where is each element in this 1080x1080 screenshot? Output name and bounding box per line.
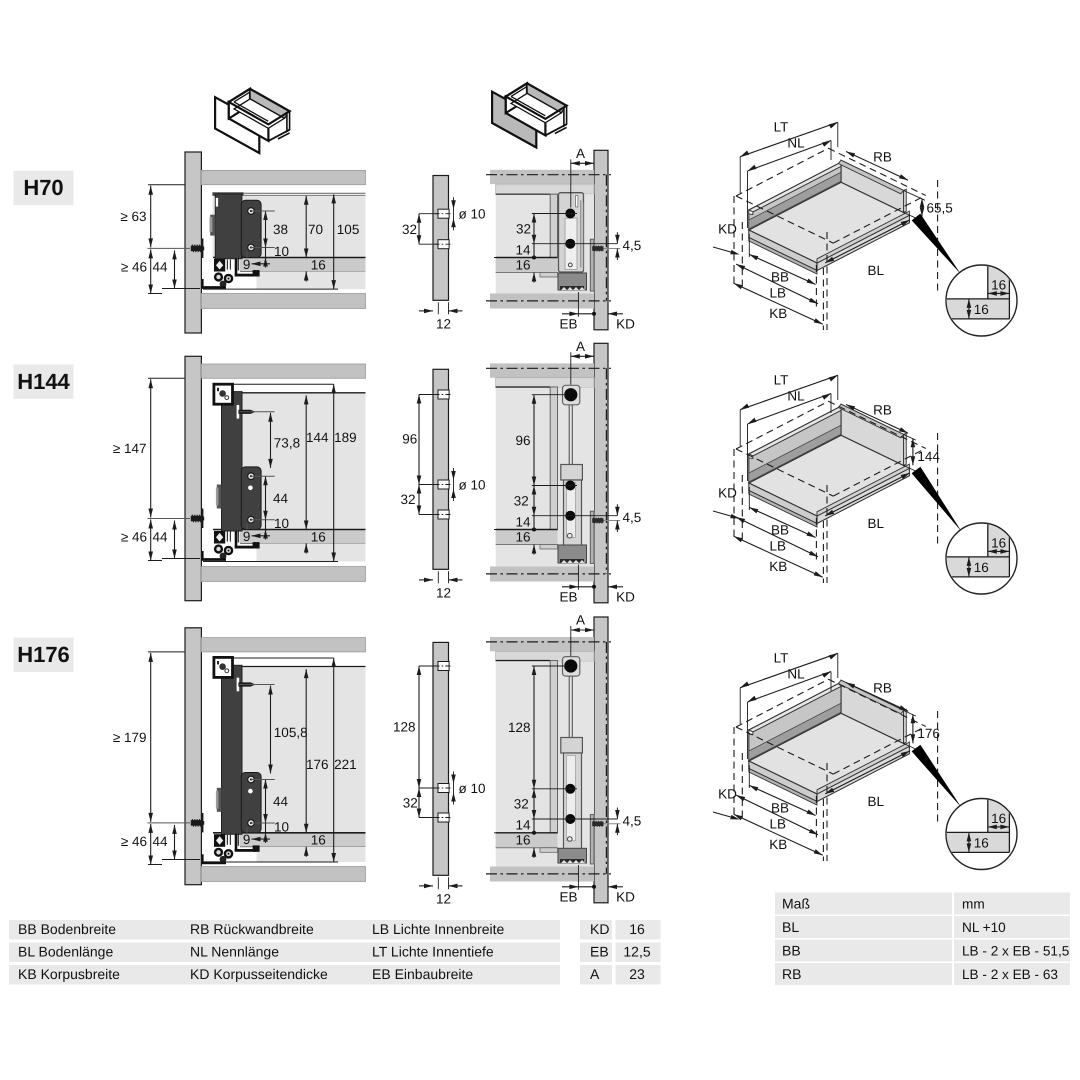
svg-text:LT: LT <box>774 373 789 388</box>
svg-text:10: 10 <box>274 516 289 531</box>
svg-text:RB: RB <box>873 150 892 165</box>
svg-text:ø 10: ø 10 <box>459 781 486 796</box>
svg-text:RB: RB <box>873 681 892 696</box>
svg-text:44: 44 <box>152 834 168 849</box>
svg-text:KD: KD <box>616 316 635 331</box>
svg-text:H144: H144 <box>17 369 70 394</box>
svg-text:LB - 2 x EB - 51,5: LB - 2 x EB - 51,5 <box>962 943 1069 958</box>
svg-text:A: A <box>576 146 585 161</box>
svg-text:≥ 46: ≥ 46 <box>121 260 147 275</box>
svg-text:16: 16 <box>974 836 989 851</box>
svg-text:221: 221 <box>334 757 357 772</box>
svg-text:≥ 46: ≥ 46 <box>121 834 147 849</box>
svg-text:12: 12 <box>436 585 451 600</box>
svg-text:LT: LT <box>774 120 789 135</box>
svg-text:16: 16 <box>311 833 326 848</box>
svg-text:EB: EB <box>559 589 577 604</box>
svg-text:10: 10 <box>274 244 289 259</box>
svg-text:70: 70 <box>308 222 323 237</box>
svg-text:4,5: 4,5 <box>623 238 642 253</box>
svg-text:105: 105 <box>337 222 360 237</box>
svg-text:14: 14 <box>515 242 531 257</box>
svg-text:A: A <box>576 339 585 354</box>
svg-text:128: 128 <box>508 720 531 735</box>
svg-text:NL: NL <box>787 667 805 682</box>
svg-text:16: 16 <box>991 277 1006 292</box>
svg-text:NL: NL <box>787 136 805 151</box>
svg-text:38: 38 <box>273 222 288 237</box>
svg-text:RB: RB <box>782 966 801 982</box>
svg-text:44: 44 <box>273 794 289 809</box>
svg-text:9: 9 <box>243 257 251 272</box>
svg-text:EB: EB <box>559 889 577 904</box>
svg-text:≥ 179: ≥ 179 <box>113 730 147 745</box>
svg-text:32: 32 <box>401 492 416 507</box>
svg-text:Maß: Maß <box>782 896 810 912</box>
svg-text:12: 12 <box>436 316 451 331</box>
svg-text:KD: KD <box>616 889 635 904</box>
svg-text:mm: mm <box>962 896 985 911</box>
svg-text:144: 144 <box>917 449 940 464</box>
svg-text:BL: BL <box>782 919 799 935</box>
svg-text:LB - 2 x EB - 63: LB - 2 x EB - 63 <box>962 967 1058 982</box>
svg-text:4,5: 4,5 <box>623 510 642 525</box>
svg-text:RB: RB <box>873 403 892 418</box>
svg-text:ø 10: ø 10 <box>459 207 486 222</box>
svg-text:EB Einbaubreite: EB Einbaubreite <box>372 966 473 982</box>
svg-text:44: 44 <box>152 530 168 545</box>
svg-text:A: A <box>590 966 600 982</box>
svg-text:16: 16 <box>311 257 326 272</box>
svg-text:9: 9 <box>243 529 251 544</box>
svg-text:16: 16 <box>311 529 326 544</box>
svg-text:32: 32 <box>403 796 418 811</box>
svg-text:44: 44 <box>152 260 168 275</box>
svg-text:73,8: 73,8 <box>274 435 300 450</box>
svg-text:65,5: 65,5 <box>927 200 953 215</box>
svg-text:KD Korpusseitendicke: KD Korpusseitendicke <box>190 966 328 982</box>
svg-text:16: 16 <box>991 811 1006 826</box>
svg-text:KB Korpusbreite: KB Korpusbreite <box>18 966 120 982</box>
svg-text:ø 10: ø 10 <box>459 477 486 492</box>
svg-text:≥ 63: ≥ 63 <box>120 209 146 224</box>
svg-text:16: 16 <box>974 302 989 317</box>
svg-text:KB: KB <box>769 559 787 574</box>
svg-text:10: 10 <box>274 819 289 834</box>
svg-text:NL: NL <box>787 389 805 404</box>
svg-text:16: 16 <box>515 833 530 848</box>
svg-text:32: 32 <box>514 797 529 812</box>
svg-text:16: 16 <box>974 560 989 575</box>
svg-text:176: 176 <box>917 726 940 741</box>
svg-text:BB Bodenbreite: BB Bodenbreite <box>18 921 116 937</box>
svg-text:144: 144 <box>306 430 329 445</box>
svg-text:12: 12 <box>436 891 451 906</box>
svg-text:H70: H70 <box>23 175 63 200</box>
svg-text:4,5: 4,5 <box>623 813 642 828</box>
svg-text:KD: KD <box>616 589 635 604</box>
svg-text:23: 23 <box>629 966 645 982</box>
svg-text:14: 14 <box>515 514 531 529</box>
svg-text:LT Lichte Innentiefe: LT Lichte Innentiefe <box>372 944 494 960</box>
svg-text:189: 189 <box>334 430 357 445</box>
svg-text:BB: BB <box>782 943 801 959</box>
svg-text:BL: BL <box>867 794 884 809</box>
svg-text:128: 128 <box>393 720 416 735</box>
svg-text:EB: EB <box>590 944 609 960</box>
svg-text:32: 32 <box>516 221 531 236</box>
svg-text:H176: H176 <box>17 642 70 667</box>
svg-text:96: 96 <box>515 433 530 448</box>
svg-text:16: 16 <box>515 257 530 272</box>
svg-text:EB: EB <box>559 316 577 331</box>
svg-text:BL: BL <box>867 516 884 531</box>
svg-text:12,5: 12,5 <box>623 944 650 960</box>
svg-text:≥ 46: ≥ 46 <box>121 530 147 545</box>
svg-text:≥ 147: ≥ 147 <box>113 441 147 456</box>
svg-text:KD: KD <box>590 921 609 937</box>
svg-text:KD: KD <box>718 787 737 802</box>
svg-text:LB: LB <box>769 285 786 300</box>
svg-text:KD: KD <box>718 222 737 237</box>
svg-text:BL: BL <box>867 263 884 278</box>
svg-text:96: 96 <box>402 432 417 447</box>
svg-text:16: 16 <box>629 921 645 937</box>
svg-text:A: A <box>576 613 585 628</box>
svg-text:KB: KB <box>769 306 787 321</box>
svg-text:KB: KB <box>769 837 787 852</box>
svg-text:LT: LT <box>774 651 789 666</box>
svg-text:32: 32 <box>514 493 529 508</box>
svg-text:14: 14 <box>515 818 531 833</box>
svg-text:BL Bodenlänge: BL Bodenlänge <box>18 944 113 960</box>
svg-text:32: 32 <box>402 222 417 237</box>
svg-text:44: 44 <box>273 491 289 506</box>
svg-text:9: 9 <box>243 832 251 847</box>
svg-text:RB Rückwandbreite: RB Rückwandbreite <box>190 921 314 937</box>
svg-text:LB: LB <box>769 538 786 553</box>
svg-text:LB Lichte Innenbreite: LB Lichte Innenbreite <box>372 921 505 937</box>
svg-text:16: 16 <box>515 529 530 544</box>
svg-text:KD: KD <box>718 486 737 501</box>
svg-text:LB: LB <box>769 816 786 831</box>
svg-text:105,8: 105,8 <box>274 725 308 740</box>
svg-text:NL Nennlänge: NL Nennlänge <box>190 944 279 960</box>
svg-text:NL +10: NL +10 <box>962 920 1006 935</box>
svg-text:16: 16 <box>991 535 1006 550</box>
svg-text:176: 176 <box>306 757 329 772</box>
